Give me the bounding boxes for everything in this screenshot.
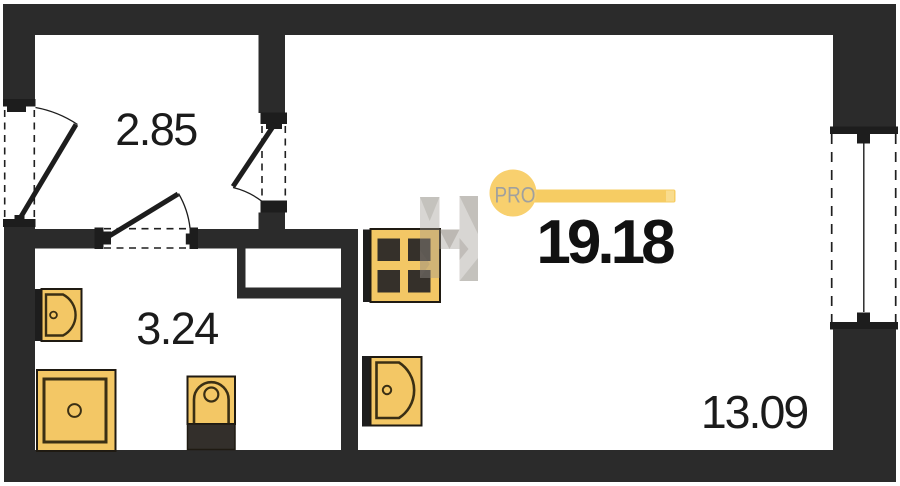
- svg-text:19.18: 19.18: [536, 208, 674, 277]
- svg-text:13.09: 13.09: [701, 386, 808, 438]
- svg-text:3.24: 3.24: [136, 303, 218, 354]
- svg-text:2.85: 2.85: [115, 104, 197, 155]
- svg-text:PRO: PRO: [495, 183, 536, 208]
